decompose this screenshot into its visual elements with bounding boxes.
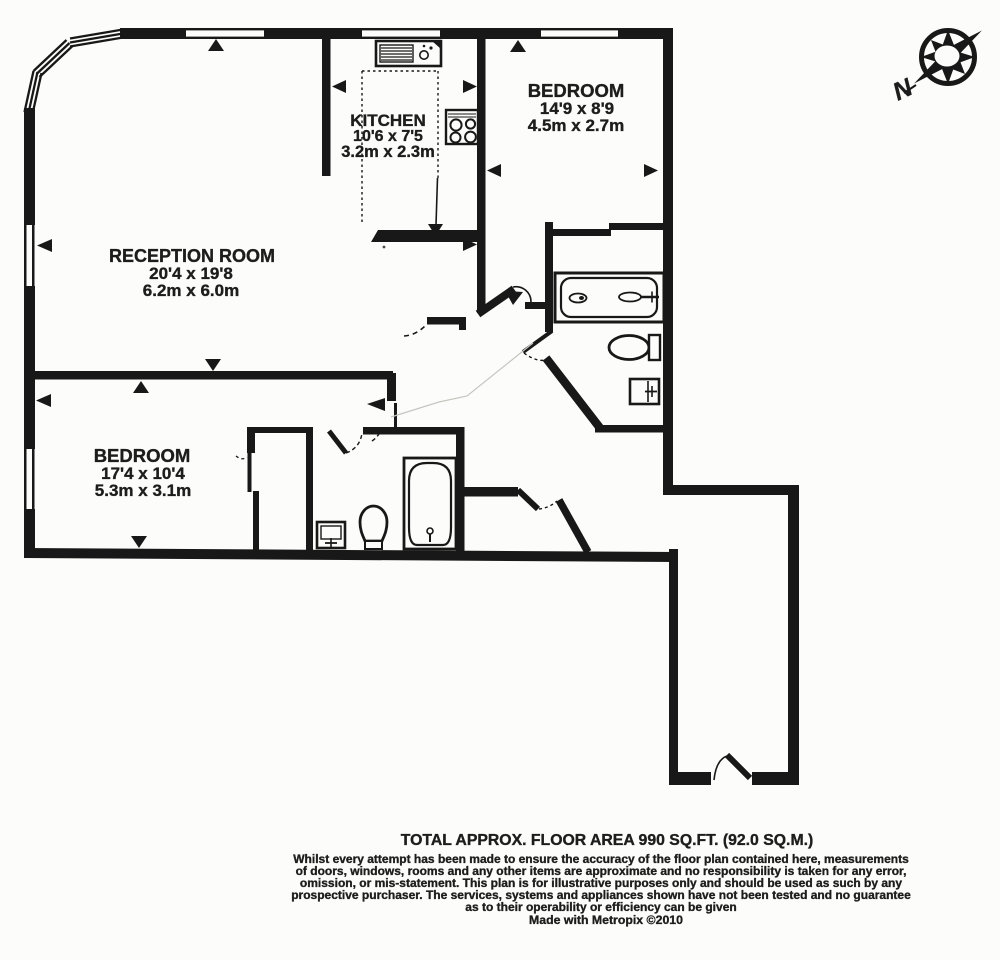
svg-text:BEDROOM: BEDROOM [94,445,191,466]
svg-text:BEDROOM: BEDROOM [528,80,625,101]
svg-text:Made with Metropix ©2010: Made with Metropix ©2010 [529,913,683,927]
svg-text:RECEPTION ROOM: RECEPTION ROOM [109,246,275,266]
svg-text:3.2m x 2.3m: 3.2m x 2.3m [341,143,435,161]
svg-text:5.3m x 3.1m: 5.3m x 3.1m [95,481,191,500]
svg-text:TOTAL APPROX. FLOOR AREA 990 S: TOTAL APPROX. FLOOR AREA 990 SQ.FT. (92.… [401,832,814,849]
svg-text:4.5m x 2.7m: 4.5m x 2.7m [528,116,624,135]
svg-text:as to their operability or eff: as to their operability or efficiency ca… [465,900,736,914]
svg-text:6.2m x 6.0m: 6.2m x 6.0m [143,281,239,300]
